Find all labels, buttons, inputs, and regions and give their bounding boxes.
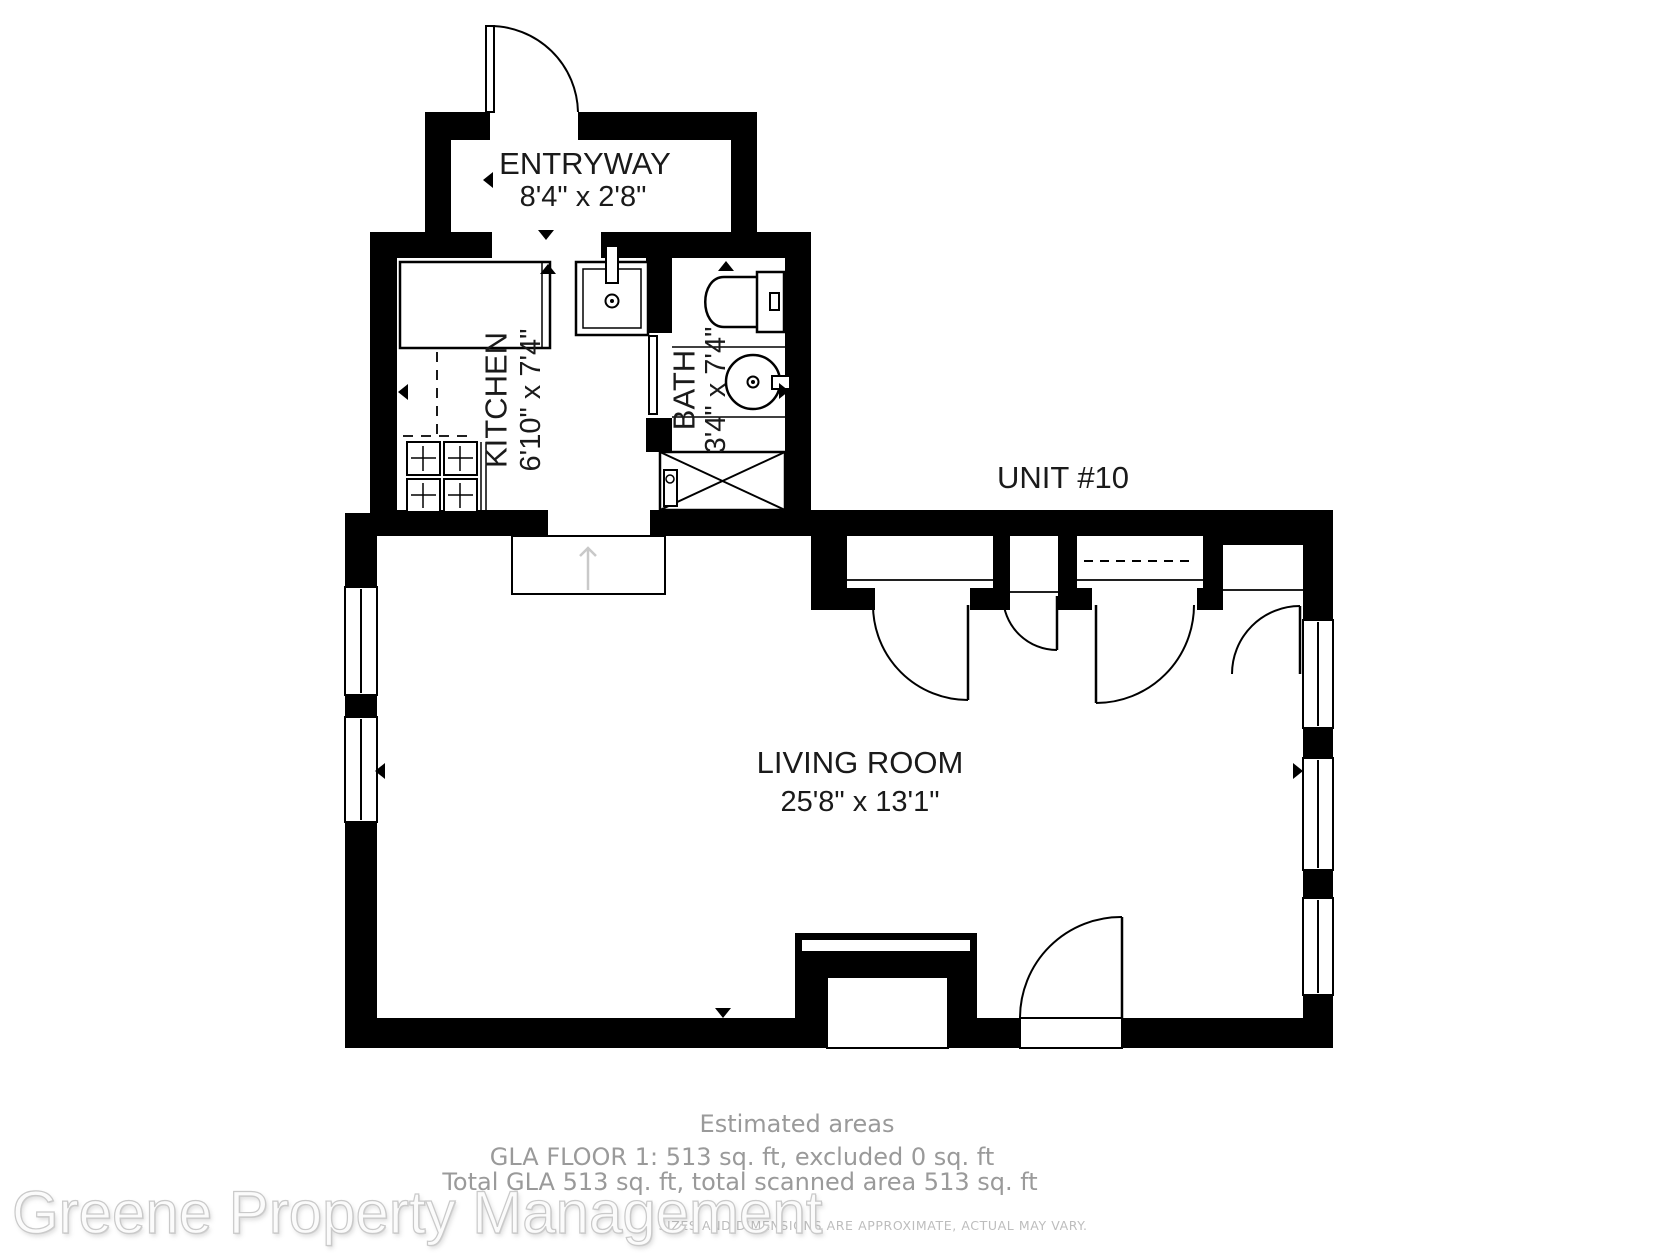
bath-label: BATH xyxy=(667,350,702,430)
window-right-1 xyxy=(1303,620,1333,728)
closet-a-opening xyxy=(875,588,970,610)
window-left-2 xyxy=(345,717,377,822)
kitchen-dims: 6'10" x 7'4" xyxy=(515,329,547,472)
window-right-2 xyxy=(1303,758,1333,870)
estimated-areas-heading: Estimated areas xyxy=(700,1110,895,1138)
entryway-dims: 8'4" x 2'8" xyxy=(520,181,647,213)
bath-dims: 3'4" x 7'4" xyxy=(700,327,732,454)
shower-icon xyxy=(660,452,785,510)
gla-floor-line: GLA FLOOR 1: 513 sq. ft, excluded 0 sq. … xyxy=(490,1143,994,1171)
toilet-icon xyxy=(705,272,784,332)
kitchen-label: KITCHEN xyxy=(479,332,514,468)
window-right-3 xyxy=(1303,898,1333,995)
watermark-text: Greene Property Management xyxy=(12,1178,822,1247)
floor-plan-svg: ENTRYWAY 8'4" x 2'8" KITCHEN 6'10" x 7'4… xyxy=(0,0,1680,1260)
window-left-1 xyxy=(345,587,377,695)
chimney-window-band xyxy=(801,939,971,952)
living-room-entry-door xyxy=(1020,917,1122,1018)
kitchen-sink-icon xyxy=(576,246,648,335)
alcove-d-door xyxy=(1232,606,1300,674)
alcove-d-interior xyxy=(1223,545,1303,610)
unit-label: UNIT #10 xyxy=(997,460,1129,495)
closet-a-door xyxy=(873,605,968,700)
closet-c-door xyxy=(1096,605,1194,703)
living-room-dims: 25'8" x 13'1" xyxy=(780,786,939,818)
chimney-notch xyxy=(827,977,948,1048)
kitchen-counter-icon xyxy=(403,352,470,436)
alcove-b-interior xyxy=(1010,536,1058,610)
entry-door xyxy=(486,26,578,112)
living-room-label: LIVING ROOM xyxy=(757,745,964,780)
entryway-label: ENTRYWAY xyxy=(499,146,671,181)
bath-door-leaf xyxy=(649,336,657,414)
floor-plan-page: ENTRYWAY 8'4" x 2'8" KITCHEN 6'10" x 7'4… xyxy=(0,0,1680,1260)
main-door-opening xyxy=(1020,1018,1122,1048)
stove-icon xyxy=(407,442,486,512)
closet-c-opening xyxy=(1092,588,1197,610)
